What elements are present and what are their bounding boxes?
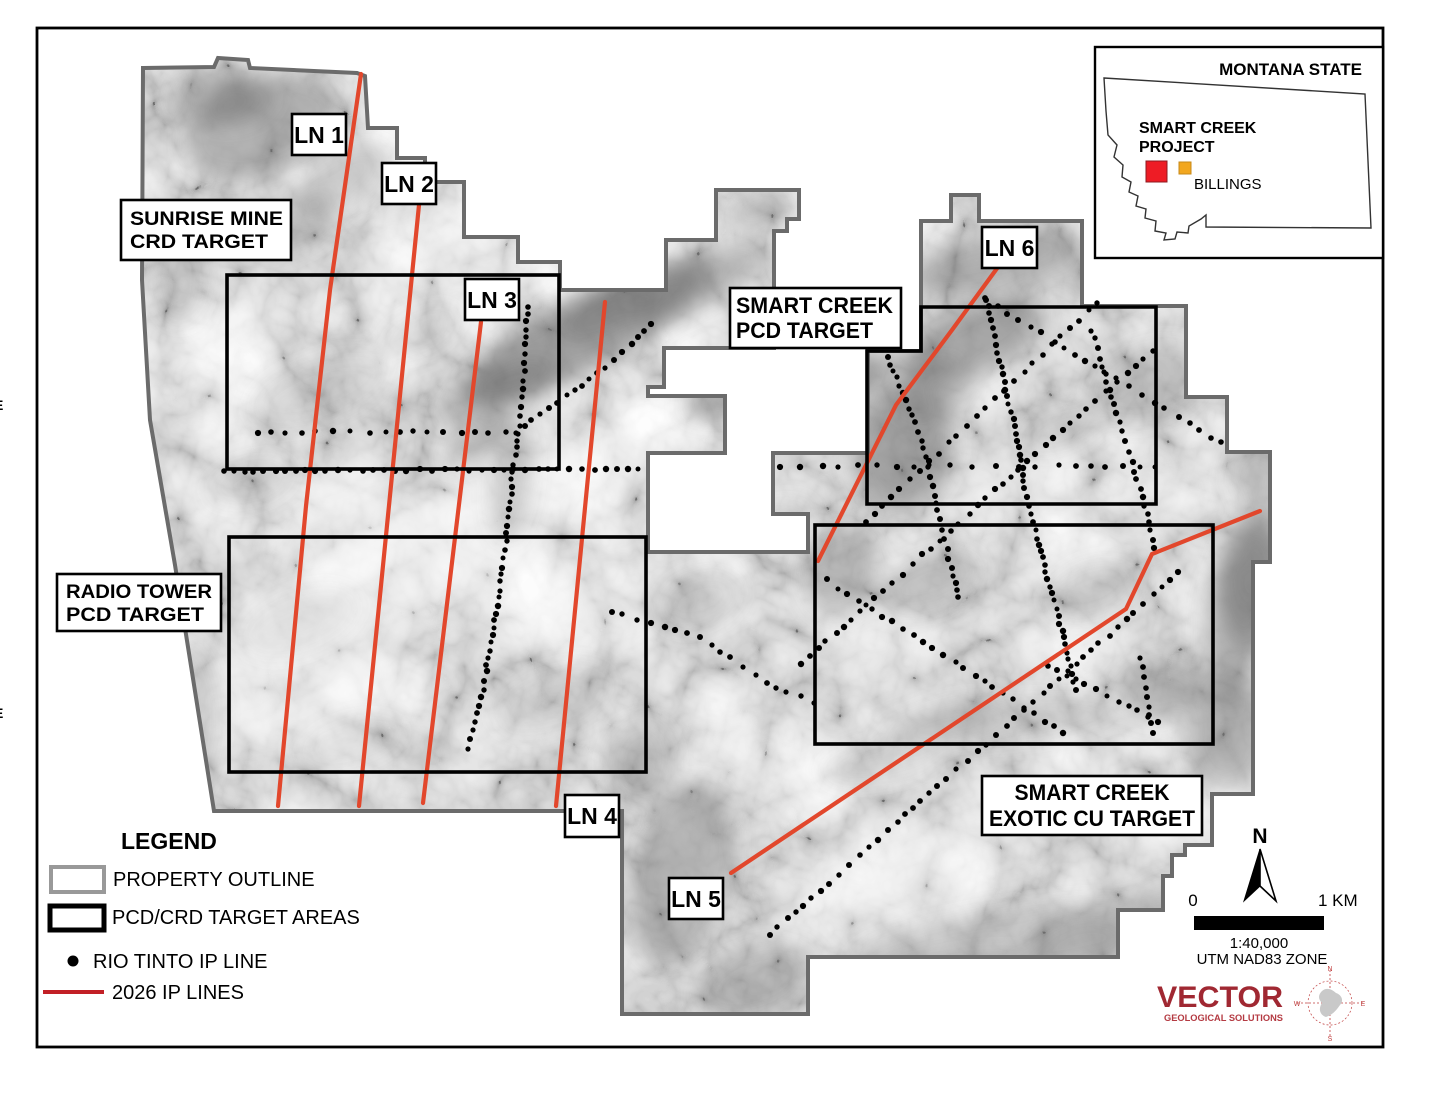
svg-text:SUNRISE MINE: SUNRISE MINE: [130, 209, 283, 230]
svg-text:GEOLOGICAL SOLUTIONS: GEOLOGICAL SOLUTIONS: [1164, 1013, 1283, 1023]
svg-text:PCD/CRD TARGET AREAS: PCD/CRD TARGET AREAS: [112, 907, 360, 929]
svg-text:RIO TINTO IP LINE: RIO TINTO IP LINE: [93, 951, 268, 973]
svg-text:LN 6: LN 6: [985, 235, 1035, 261]
svg-text:SMART CREEK: SMART CREEK: [1139, 120, 1257, 137]
svg-text:UTM NAD83 ZONE: UTM NAD83 ZONE: [1197, 951, 1328, 968]
svg-text:E: E: [1361, 1001, 1366, 1008]
svg-text:LN 3: LN 3: [467, 287, 517, 313]
svg-text:W: W: [1294, 1001, 1301, 1008]
svg-text:PROJECT: PROJECT: [1139, 139, 1215, 156]
svg-text:PROPERTY OUTLINE: PROPERTY OUTLINE: [113, 869, 315, 891]
svg-text:SMART CREEK: SMART CREEK: [736, 293, 893, 318]
svg-text:1 KM: 1 KM: [1318, 891, 1358, 910]
svg-text:MONTANA STATE: MONTANA STATE: [1219, 60, 1362, 79]
svg-text:RADIO TOWER: RADIO TOWER: [66, 582, 212, 603]
svg-text:VECTOR: VECTOR: [1157, 981, 1283, 1014]
svg-text:LN 5: LN 5: [671, 886, 721, 912]
svg-text:E: E: [0, 705, 3, 721]
svg-text:N: N: [1327, 966, 1332, 973]
svg-text:EXOTIC CU TARGET: EXOTIC CU TARGET: [989, 806, 1196, 831]
svg-text:PCD TARGET: PCD TARGET: [66, 605, 204, 626]
svg-text:E: E: [0, 397, 3, 413]
svg-text:CRD TARGET: CRD TARGET: [130, 232, 268, 253]
svg-text:0: 0: [1188, 891, 1197, 910]
svg-text:1:40,000: 1:40,000: [1230, 935, 1288, 952]
svg-text:PCD TARGET: PCD TARGET: [736, 318, 874, 343]
svg-text:2026 IP LINES: 2026 IP LINES: [112, 982, 244, 1004]
svg-text:SMART CREEK: SMART CREEK: [1015, 780, 1170, 805]
svg-text:LN 1: LN 1: [294, 122, 344, 148]
svg-text:LN 2: LN 2: [384, 171, 434, 197]
svg-text:LN 4: LN 4: [567, 803, 617, 829]
svg-text:LEGEND: LEGEND: [121, 828, 217, 854]
svg-text:BILLINGS: BILLINGS: [1194, 176, 1262, 193]
svg-text:N: N: [1252, 825, 1267, 848]
svg-text:S: S: [1328, 1036, 1333, 1043]
